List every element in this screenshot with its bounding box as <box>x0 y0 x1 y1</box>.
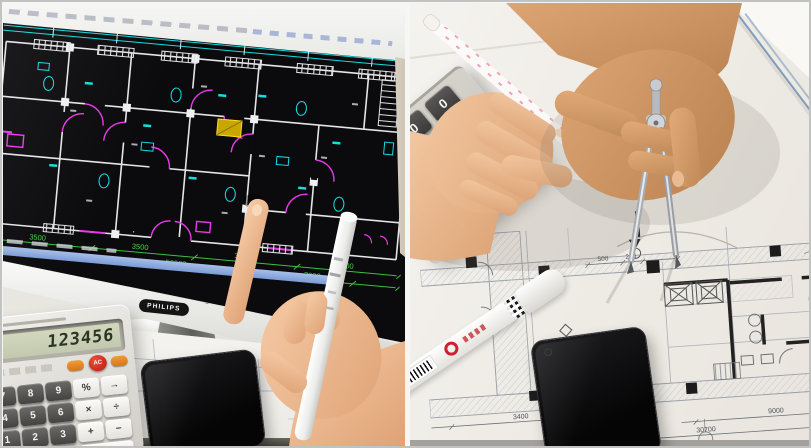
left-photo-cad-workstation: PHILIPS <box>3 3 405 447</box>
photo-collage: PHILIPS <box>0 0 811 448</box>
right-photo-blueprint-desk: 500 200 3400 9000 30700 <box>410 3 810 447</box>
pointing-hand <box>3 3 405 447</box>
compass-leg-shadows <box>607 255 676 303</box>
compass-hand <box>410 3 810 447</box>
phone-case-edge <box>160 446 240 447</box>
compass-knob <box>650 79 662 91</box>
index-finger <box>221 197 270 326</box>
